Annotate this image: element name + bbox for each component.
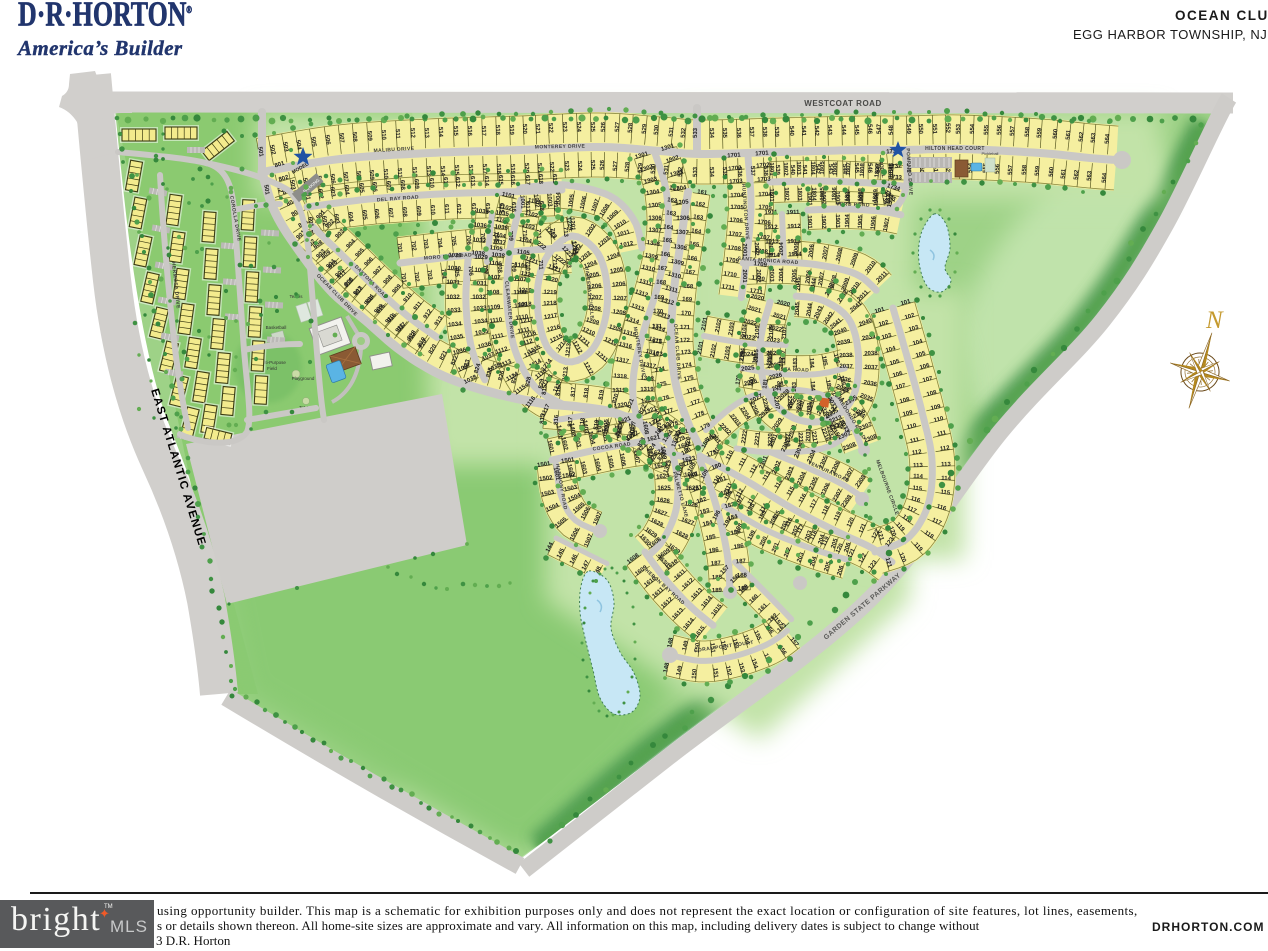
svg-text:1307: 1307 — [675, 230, 689, 237]
svg-text:607: 607 — [387, 208, 394, 219]
svg-text:507: 507 — [337, 133, 344, 144]
svg-text:1913: 1913 — [765, 239, 779, 245]
svg-text:WESTCOAT ROAD: WESTCOAT ROAD — [804, 99, 881, 108]
svg-text:1032: 1032 — [472, 295, 486, 301]
svg-text:1004: 1004 — [556, 192, 562, 206]
svg-text:182: 182 — [779, 356, 786, 367]
svg-text:N: N — [1205, 307, 1224, 334]
svg-text:151: 151 — [711, 668, 718, 679]
svg-text:184: 184 — [809, 381, 816, 392]
svg-text:170: 170 — [681, 311, 692, 318]
svg-text:560: 560 — [1053, 128, 1060, 139]
svg-text:1803: 1803 — [796, 187, 802, 201]
svg-text:169: 169 — [654, 295, 665, 302]
svg-text:526: 526 — [601, 121, 607, 132]
svg-text:537: 537 — [749, 166, 755, 177]
svg-text:817: 817 — [570, 386, 577, 397]
svg-text:555: 555 — [984, 124, 991, 135]
svg-text:544: 544 — [840, 125, 846, 136]
svg-text:611: 611 — [443, 204, 450, 215]
svg-text:1702: 1702 — [728, 165, 742, 172]
svg-text:552: 552 — [944, 123, 950, 134]
svg-text:609: 609 — [413, 179, 420, 190]
svg-text:528: 528 — [625, 161, 632, 172]
svg-text:1701: 1701 — [727, 152, 741, 159]
svg-text:182: 182 — [777, 380, 784, 391]
svg-text:1218: 1218 — [543, 301, 557, 308]
svg-text:HILTON HEAD COURT: HILTON HEAD COURT — [925, 146, 985, 152]
svg-text:113: 113 — [913, 463, 924, 469]
svg-text:559: 559 — [1037, 127, 1044, 138]
svg-text:1218: 1218 — [518, 302, 532, 309]
svg-text:VISTA ROAD: VISTA ROAD — [775, 366, 809, 373]
svg-text:556: 556 — [995, 163, 1002, 174]
svg-text:2106: 2106 — [769, 325, 775, 339]
svg-text:527: 527 — [613, 160, 620, 171]
svg-text:556: 556 — [997, 124, 1004, 135]
svg-text:617: 617 — [524, 175, 530, 186]
svg-text:534: 534 — [708, 128, 714, 139]
svg-text:518: 518 — [495, 164, 501, 175]
svg-text:1801: 1801 — [768, 188, 774, 202]
svg-text:1319: 1319 — [640, 387, 654, 393]
svg-text:150: 150 — [691, 668, 698, 679]
svg-text:534: 534 — [708, 167, 714, 178]
svg-text:540: 540 — [788, 126, 794, 137]
svg-text:521: 521 — [534, 124, 541, 135]
svg-text:706: 706 — [465, 235, 472, 246]
svg-text:533: 533 — [693, 127, 699, 138]
svg-text:510: 510 — [380, 130, 387, 141]
svg-text:1706: 1706 — [729, 218, 743, 225]
svg-text:522: 522 — [547, 123, 554, 134]
svg-text:1903: 1903 — [834, 214, 840, 228]
svg-text:557: 557 — [1008, 164, 1015, 175]
svg-text:MONTEREY DRIVE: MONTEREY DRIVE — [535, 144, 586, 151]
svg-text:187: 187 — [711, 561, 722, 568]
svg-text:816: 816 — [554, 414, 561, 425]
svg-text:612: 612 — [455, 204, 461, 215]
svg-text:519: 519 — [508, 125, 514, 136]
svg-text:2001: 2001 — [741, 269, 747, 283]
svg-text:1905: 1905 — [858, 214, 865, 228]
svg-text:509: 509 — [366, 131, 373, 142]
svg-text:2004: 2004 — [779, 242, 785, 256]
svg-text:564: 564 — [1105, 133, 1112, 144]
svg-text:558: 558 — [1022, 164, 1029, 175]
svg-text:508: 508 — [351, 132, 358, 143]
svg-text:557: 557 — [1010, 125, 1017, 136]
svg-text:559: 559 — [1035, 165, 1042, 176]
svg-text:553: 553 — [956, 123, 962, 134]
svg-text:1902: 1902 — [820, 191, 826, 205]
svg-text:605: 605 — [360, 210, 367, 221]
svg-text:546: 546 — [866, 124, 872, 135]
svg-text:1001: 1001 — [519, 195, 526, 209]
svg-text:173: 173 — [653, 352, 664, 359]
svg-text:189: 189 — [712, 588, 723, 595]
svg-text:2004: 2004 — [779, 268, 785, 282]
svg-text:705: 705 — [449, 236, 456, 247]
svg-text:1806: 1806 — [833, 162, 839, 176]
svg-text:532: 532 — [681, 127, 688, 138]
svg-text:2002: 2002 — [753, 242, 759, 256]
svg-text:113: 113 — [941, 462, 952, 468]
svg-text:515: 515 — [452, 126, 458, 137]
svg-text:618: 618 — [537, 174, 543, 185]
svg-text:Basketball: Basketball — [266, 325, 287, 330]
svg-text:1914: 1914 — [788, 252, 802, 258]
svg-text:1030: 1030 — [447, 266, 461, 273]
svg-text:1901: 1901 — [806, 215, 812, 229]
svg-text:1003: 1003 — [546, 193, 553, 207]
svg-text:706: 706 — [467, 266, 474, 277]
svg-text:545: 545 — [853, 163, 859, 174]
svg-text:549: 549 — [905, 124, 911, 135]
svg-text:Field: Field — [267, 366, 277, 371]
svg-text:526: 526 — [600, 159, 606, 170]
svg-text:1802: 1802 — [782, 162, 788, 176]
svg-text:542: 542 — [813, 126, 819, 137]
svg-text:1701: 1701 — [755, 150, 769, 157]
svg-text:168: 168 — [656, 279, 667, 286]
svg-text:524: 524 — [575, 122, 581, 133]
svg-text:1912: 1912 — [787, 224, 801, 230]
svg-text:527: 527 — [615, 121, 622, 132]
svg-text:518: 518 — [494, 125, 500, 136]
svg-text:545: 545 — [853, 125, 859, 136]
svg-text:1805: 1805 — [820, 161, 826, 175]
svg-text:510: 510 — [382, 169, 389, 180]
svg-text:523: 523 — [561, 122, 568, 133]
svg-text:2105: 2105 — [755, 324, 762, 338]
svg-text:2045: 2045 — [796, 276, 803, 290]
svg-text:548: 548 — [889, 124, 895, 135]
svg-text:523: 523 — [563, 161, 570, 172]
svg-text:512: 512 — [409, 128, 416, 139]
svg-text:522: 522 — [548, 162, 555, 173]
svg-text:535: 535 — [721, 128, 727, 139]
svg-text:1902: 1902 — [820, 215, 826, 229]
svg-text:171: 171 — [680, 325, 691, 331]
svg-text:610: 610 — [429, 205, 436, 216]
svg-text:540: 540 — [789, 165, 795, 176]
svg-text:1703: 1703 — [757, 176, 771, 183]
svg-text:2037: 2037 — [839, 364, 853, 370]
svg-text:538: 538 — [761, 127, 767, 138]
svg-text:2220: 2220 — [768, 433, 774, 447]
svg-text:1206: 1206 — [612, 281, 626, 288]
svg-text:172: 172 — [680, 338, 691, 344]
svg-text:114: 114 — [941, 476, 952, 483]
svg-text:563: 563 — [1087, 170, 1094, 181]
svg-text:1307: 1307 — [648, 228, 662, 235]
svg-text:520: 520 — [521, 124, 527, 135]
svg-text:524: 524 — [576, 161, 582, 172]
svg-text:114: 114 — [913, 474, 924, 481]
svg-text:514: 514 — [439, 166, 445, 177]
svg-text:609: 609 — [415, 206, 422, 217]
svg-text:1807: 1807 — [846, 161, 853, 175]
svg-text:536: 536 — [735, 128, 741, 139]
svg-text:561: 561 — [1060, 168, 1067, 179]
svg-text:531: 531 — [668, 126, 675, 137]
svg-text:612: 612 — [454, 177, 460, 188]
svg-text:614: 614 — [483, 176, 489, 187]
svg-text:2038: 2038 — [864, 351, 878, 358]
svg-text:1906: 1906 — [873, 192, 880, 206]
svg-text:543: 543 — [826, 125, 832, 136]
svg-text:530: 530 — [654, 124, 661, 135]
svg-text:606: 606 — [373, 209, 380, 220]
svg-text:1033: 1033 — [473, 305, 487, 312]
svg-text:519: 519 — [509, 164, 515, 175]
svg-text:187: 187 — [736, 559, 747, 566]
svg-text:513: 513 — [423, 128, 430, 139]
svg-text:2219: 2219 — [784, 433, 790, 447]
svg-text:511: 511 — [394, 129, 401, 140]
svg-text:608: 608 — [399, 180, 406, 191]
svg-text:514: 514 — [437, 127, 443, 138]
svg-text:1207: 1207 — [613, 296, 627, 302]
svg-text:533: 533 — [693, 166, 699, 177]
svg-text:528: 528 — [628, 122, 635, 133]
svg-text:541: 541 — [800, 126, 806, 137]
svg-text:1808: 1808 — [860, 162, 867, 176]
svg-text:1625: 1625 — [657, 486, 671, 492]
svg-text:1032: 1032 — [446, 295, 460, 301]
svg-text:509: 509 — [368, 170, 375, 181]
svg-text:558: 558 — [1025, 126, 1032, 137]
svg-text:525: 525 — [589, 122, 595, 133]
svg-text:546: 546 — [866, 163, 872, 174]
svg-text:1405: 1405 — [604, 419, 610, 433]
svg-text:169: 169 — [682, 297, 693, 304]
svg-text:513: 513 — [425, 166, 432, 177]
svg-text:172: 172 — [652, 339, 663, 345]
svg-text:2208: 2208 — [786, 395, 792, 409]
svg-text:562: 562 — [1073, 169, 1080, 180]
svg-text:616: 616 — [509, 175, 515, 186]
svg-text:539: 539 — [773, 127, 779, 138]
svg-text:1911: 1911 — [786, 210, 800, 216]
svg-text:554: 554 — [970, 123, 976, 134]
svg-text:561: 561 — [1065, 129, 1072, 140]
svg-text:563: 563 — [1091, 132, 1098, 143]
svg-text:613: 613 — [469, 176, 475, 187]
svg-text:550: 550 — [917, 124, 923, 135]
svg-text:1906: 1906 — [870, 215, 877, 229]
svg-text:1318: 1318 — [613, 373, 627, 380]
svg-text:171: 171 — [652, 324, 663, 330]
svg-text:608: 608 — [401, 207, 408, 218]
svg-text:1803: 1803 — [795, 161, 801, 175]
svg-text:1306: 1306 — [676, 216, 690, 222]
svg-text:1904: 1904 — [845, 214, 851, 228]
svg-text:1306: 1306 — [648, 216, 662, 222]
svg-text:2107: 2107 — [782, 326, 788, 340]
svg-text:564: 564 — [1102, 172, 1109, 183]
svg-text:2038: 2038 — [839, 353, 853, 360]
svg-text:562: 562 — [1078, 131, 1085, 142]
svg-text:2002: 2002 — [755, 269, 761, 283]
svg-text:1804: 1804 — [809, 161, 815, 175]
svg-text:537: 537 — [748, 127, 754, 138]
svg-text:507: 507 — [341, 172, 348, 183]
svg-text:2045: 2045 — [795, 301, 802, 315]
svg-text:1802: 1802 — [783, 187, 789, 201]
svg-text:529: 529 — [642, 123, 649, 134]
svg-text:547: 547 — [877, 123, 883, 134]
svg-text:Playground: Playground — [292, 376, 315, 381]
svg-text:173: 173 — [681, 350, 692, 357]
svg-text:517: 517 — [480, 126, 486, 137]
svg-text:560: 560 — [1049, 166, 1056, 177]
svg-text:1733: 1733 — [888, 175, 902, 182]
svg-text:551: 551 — [931, 124, 937, 135]
svg-text:2037: 2037 — [864, 365, 878, 371]
svg-text:170: 170 — [653, 309, 664, 316]
svg-text:1219: 1219 — [543, 290, 557, 297]
svg-text:516: 516 — [466, 126, 472, 137]
svg-text:525: 525 — [589, 160, 595, 171]
